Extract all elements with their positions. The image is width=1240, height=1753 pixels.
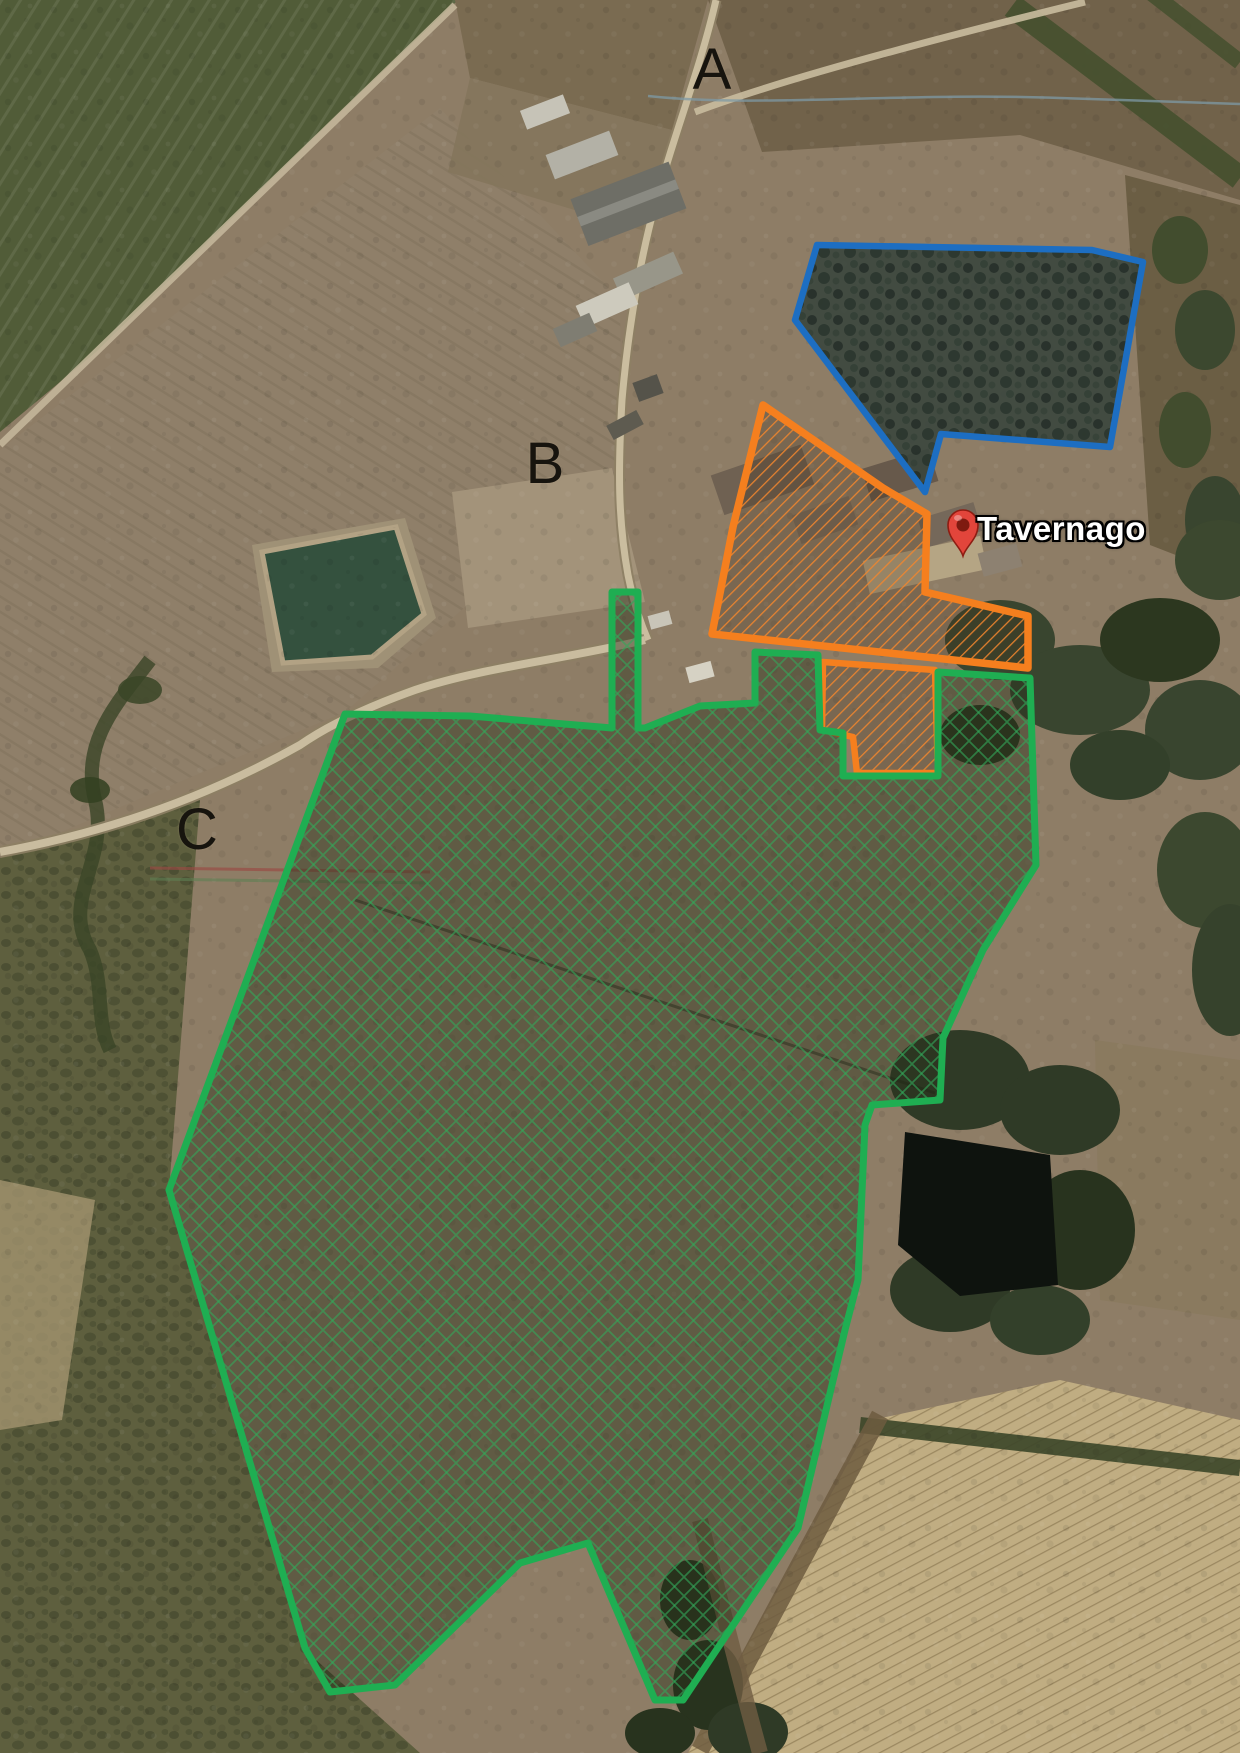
area-label-B: B xyxy=(526,435,565,493)
area-label-A: A xyxy=(693,41,732,99)
area-labels-layer: ABC xyxy=(0,0,1240,1753)
aerial-map: ABC Tavernago xyxy=(0,0,1240,1753)
place-label: Tavernago xyxy=(977,510,1146,548)
area-label-C: C xyxy=(176,801,218,859)
